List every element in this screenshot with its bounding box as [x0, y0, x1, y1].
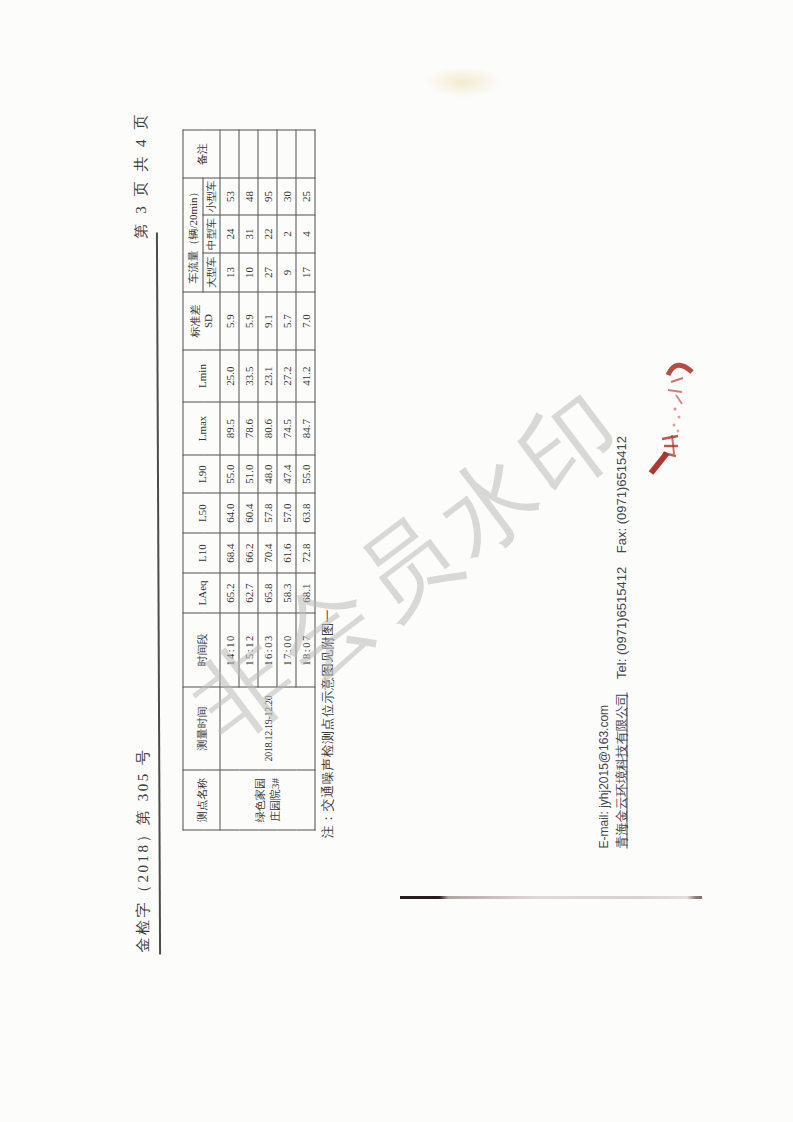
cell-remark: [220, 129, 239, 177]
header-medium-vehicle: 中型车: [203, 215, 220, 253]
header-sd-cn: 标准差: [188, 292, 201, 349]
cell-time: 15:12: [239, 613, 258, 687]
footer-tel: Tel: (0971)6515412: [613, 566, 628, 678]
cell-time: 14:10: [220, 613, 239, 687]
cell-laeq: 65.2: [220, 573, 239, 613]
cell-medium: 2: [277, 215, 296, 253]
red-seal-stamp-fragment: [648, 335, 712, 477]
cell-laeq: 65.8: [258, 573, 277, 613]
footer-company-name: 青海金云环境科技有限公司: [613, 692, 628, 848]
document-content-rotated: 金检字（2018）第 305 号 第 3 页 共 4 页 测点名称 测量时间 时…: [0, 0, 793, 1122]
footer-fax: Fax: (0971)6515412: [613, 436, 628, 553]
header-rule: [155, 232, 160, 954]
cell-l90: 55.0: [296, 455, 315, 493]
header-small-vehicle: 小型车: [203, 177, 220, 214]
cell-lmax: 89.5: [220, 402, 239, 455]
cell-laeq: 68.1: [296, 573, 315, 613]
header-sd: 标准差 SD: [183, 292, 220, 350]
cell-l10: 72.8: [296, 533, 315, 573]
cell-lmax: 74.5: [277, 402, 296, 455]
cell-sd: 9.1: [258, 292, 277, 350]
cell-remark: [277, 129, 296, 177]
cell-lmax: 80.6: [258, 402, 277, 455]
scanned-page: 金检字（2018）第 305 号 第 3 页 共 4 页 测点名称 测量时间 时…: [0, 0, 793, 1122]
cell-small: 48: [239, 177, 258, 214]
cell-medium: 4: [296, 215, 315, 253]
scan-smudge: [424, 66, 502, 98]
cell-time: 18:07: [296, 613, 315, 687]
cell-time: 16:03: [258, 613, 277, 687]
header-point-name: 测点名称: [183, 770, 220, 830]
header-sd-en: SD: [201, 292, 214, 349]
page-indicator: 第 3 页 共 4 页: [131, 111, 150, 238]
footer-email: E-mail: jyhj2015@163.com: [596, 436, 610, 848]
cell-remark: [296, 129, 315, 177]
letterhead-footer: E-mail: jyhj2015@163.com 青海金云环境科技有限公司 Te…: [596, 436, 630, 848]
header-remark: 备注: [183, 129, 220, 177]
cell-sd: 5.9: [220, 292, 239, 350]
cell-medium: 24: [220, 215, 239, 253]
cell-large: 17: [296, 253, 315, 292]
cell-l50: 63.8: [296, 493, 315, 533]
cell-lmin: 41.2: [296, 350, 315, 402]
cell-laeq: 58.3: [277, 573, 296, 613]
cell-medium: 31: [239, 215, 258, 253]
cell-l90: 51.0: [239, 455, 258, 493]
header-large-vehicle: 大型车: [203, 253, 220, 292]
cell-small: 30: [277, 177, 296, 214]
paper-edge-line: [400, 896, 702, 899]
cell-large: 10: [239, 253, 258, 292]
noise-data-table-wrap: 测点名称 测量时间 时间段 LAeq L10 L50 L90 Lmax Lmin…: [182, 128, 315, 830]
header-l50: L50: [183, 493, 220, 533]
cell-measure-date: 2018.12.19-12.20: [220, 687, 315, 770]
cell-l10: 68.4: [220, 533, 239, 573]
cell-small: 95: [258, 177, 277, 214]
cell-laeq: 62.7: [239, 573, 258, 613]
header-traffic-group: 车流量（辆/20min）: [183, 177, 203, 291]
cell-l50: 57.8: [258, 493, 277, 533]
cell-sd: 5.9: [239, 292, 258, 350]
cell-l50: 60.4: [239, 493, 258, 533]
cell-remark: [258, 129, 277, 177]
cell-time: 17:00: [277, 613, 296, 687]
cell-l90: 47.4: [277, 455, 296, 493]
cell-lmin: 27.2: [277, 350, 296, 402]
footer-company-line: 青海金云环境科技有限公司 Tel: (0971)6515412 Fax: (09…: [612, 436, 630, 848]
table-note: 注：交通噪声检测点位示意图见附图一: [318, 609, 336, 839]
cell-sd: 5.7: [277, 292, 296, 350]
cell-lmin: 23.1: [258, 350, 277, 402]
cell-large: 13: [220, 253, 239, 292]
cell-large: 27: [258, 253, 277, 292]
cell-l10: 70.4: [258, 533, 277, 573]
cell-l50: 64.0: [220, 493, 239, 533]
header-measure-date: 测量时间: [183, 687, 220, 770]
noise-data-table: 测点名称 测量时间 时间段 LAeq L10 L50 L90 Lmax Lmin…: [182, 129, 315, 830]
header-laeq: LAeq: [183, 573, 220, 613]
cell-l90: 55.0: [220, 455, 239, 493]
header-l10: L10: [183, 533, 220, 573]
cell-small: 53: [220, 177, 239, 214]
cell-lmax: 84.7: [296, 402, 315, 455]
point-name-line2: 庄园院3#: [267, 770, 282, 829]
header-lmax: Lmax: [183, 402, 220, 455]
cell-large: 9: [277, 253, 296, 292]
header-time-slot: 时间段: [183, 613, 220, 687]
cell-small: 25: [296, 177, 315, 214]
header-lmin: Lmin: [183, 350, 220, 402]
cell-l10: 61.6: [277, 533, 296, 573]
cell-lmin: 25.0: [220, 350, 239, 402]
cell-l10: 66.2: [239, 533, 258, 573]
cell-remark: [239, 129, 258, 177]
cell-sd: 7.0: [296, 292, 315, 350]
doc-number: 金检字（2018）第 305 号: [133, 747, 152, 952]
cell-l50: 57.0: [277, 493, 296, 533]
cell-medium: 22: [258, 215, 277, 253]
header-l90: L90: [183, 455, 220, 493]
point-name-line1: 绿色家园: [252, 770, 267, 829]
cell-lmax: 78.6: [239, 402, 258, 455]
cell-point-name: 绿色家园 庄园院3#: [220, 770, 315, 830]
cell-l90: 48.0: [258, 455, 277, 493]
cell-lmin: 33.5: [239, 350, 258, 402]
